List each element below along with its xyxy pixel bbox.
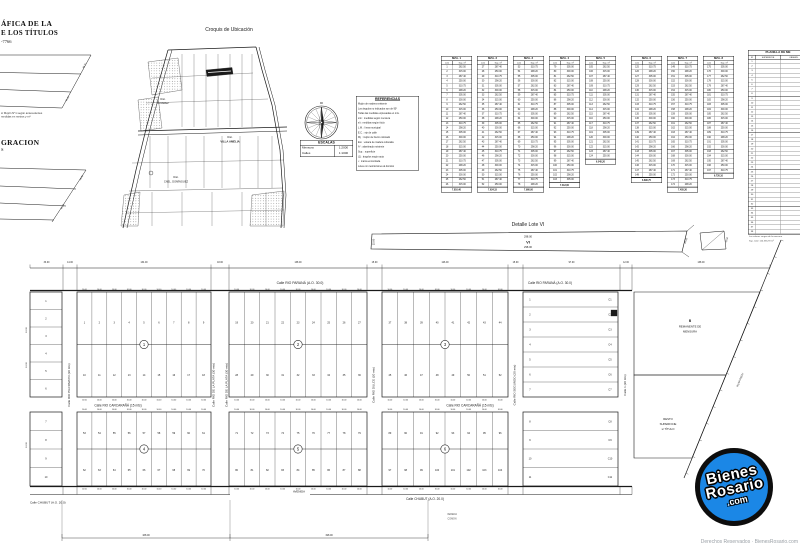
svg-text:168.00: 168.00 <box>142 534 150 537</box>
svg-text:7: 7 <box>45 420 47 423</box>
svg-text:SUPERFICIE: SUPERFICIE <box>660 422 677 426</box>
svg-text:21: 21 <box>266 322 269 325</box>
svg-text:24: 24 <box>312 322 315 325</box>
svg-text:10.00: 10.00 <box>388 289 393 291</box>
svg-text:66: 66 <box>143 469 146 472</box>
svg-text:10.00: 10.00 <box>498 289 503 291</box>
svg-text:23: 23 <box>297 322 300 325</box>
svg-text:10.00: 10.00 <box>82 409 87 411</box>
svg-text:10.00: 10.00 <box>97 409 102 411</box>
svg-text:Dist.: Dist. <box>227 135 232 139</box>
svg-text:10.00: 10.00 <box>280 399 285 401</box>
planilla-table: PLANILLA DE MEN°SUPERFICIEOBSERV.1234567… <box>748 50 800 250</box>
svg-text:10.00: 10.00 <box>201 488 206 490</box>
svg-text:10.00: 10.00 <box>326 488 331 490</box>
svg-text:10.00: 10.00 <box>311 409 316 411</box>
svg-text:33: 33 <box>312 374 315 377</box>
svg-text:10.00: 10.00 <box>265 289 270 291</box>
svg-text:80: 80 <box>235 469 238 472</box>
title-note: s/ Mojón N°1 según antecedentes medidas … <box>1 112 61 126</box>
svg-text:C4: C4 <box>608 344 612 347</box>
svg-text:75: 75 <box>297 432 300 435</box>
planilla-foot-1: Los valores surgen de la mensura <box>748 235 778 239</box>
title-block: ÁFICA DE LA E LOS TÍTULOS -7766 <box>1 20 58 44</box>
svg-text:10.00: 10.00 <box>403 488 408 490</box>
svg-text:10.00: 10.00 <box>326 409 331 411</box>
svg-text:N: N <box>320 101 322 105</box>
svg-text:47: 47 <box>420 374 423 377</box>
svg-text:10.00: 10.00 <box>97 399 102 401</box>
svg-text:18.00: 18.00 <box>217 262 223 264</box>
svg-text:10.00: 10.00 <box>311 289 316 291</box>
svg-text:99: 99 <box>420 469 423 472</box>
svg-text:C6: C6 <box>608 374 612 377</box>
svg-text:9: 9 <box>529 439 531 442</box>
svg-text:10.00: 10.00 <box>97 289 102 291</box>
svg-text:15.00: 15.00 <box>372 238 376 245</box>
svg-text:86: 86 <box>327 469 330 472</box>
svg-text:RESTO: RESTO <box>663 417 673 421</box>
svg-text:7: 7 <box>173 322 175 325</box>
svg-text:22: 22 <box>281 322 284 325</box>
svg-text:10.00: 10.00 <box>82 488 87 490</box>
svg-text:10.00: 10.00 <box>451 409 456 411</box>
svg-text:2: 2 <box>529 314 531 317</box>
svg-text:10.00: 10.00 <box>357 409 362 411</box>
svg-text:10.00: 10.00 <box>311 488 316 490</box>
svg-text:10.00: 10.00 <box>82 289 87 291</box>
svg-text:5: 5 <box>529 359 531 362</box>
legend-title: REFERENCIAS <box>358 98 417 102</box>
svg-text:C9: C9 <box>608 439 612 442</box>
svg-text:10: 10 <box>529 457 532 460</box>
svg-text:10.00: 10.00 <box>265 399 270 401</box>
svg-text:53: 53 <box>83 432 86 435</box>
svg-text:1: 1 <box>84 322 86 325</box>
svg-text:10: 10 <box>45 476 48 479</box>
svg-text:7: 7 <box>529 389 531 392</box>
svg-text:Calle CHUBUT (A.O. 20.0): Calle CHUBUT (A.O. 20.0) <box>406 497 444 501</box>
svg-text:45.72: 45.72 <box>83 62 88 68</box>
svg-text:10.00: 10.00 <box>250 289 255 291</box>
svg-text:10.00: 10.00 <box>142 409 147 411</box>
svg-text:C11: C11 <box>608 476 613 479</box>
svg-text:34: 34 <box>327 374 330 377</box>
svg-text:3: 3 <box>114 322 116 325</box>
svg-text:10.00: 10.00 <box>342 399 347 401</box>
scale-row: Calles1:1000 <box>301 151 353 157</box>
svg-text:10.00: 10.00 <box>482 409 487 411</box>
svg-text:10.00: 10.00 <box>171 289 176 291</box>
svg-text:8: 8 <box>45 439 47 442</box>
svg-text:6: 6 <box>45 387 47 390</box>
svg-text:10.00: 10.00 <box>435 488 440 490</box>
svg-text:10.00: 10.00 <box>26 361 28 367</box>
svg-text:49: 49 <box>451 374 454 377</box>
svg-text:69: 69 <box>187 469 190 472</box>
svg-text:10.00: 10.00 <box>342 289 347 291</box>
svg-text:Calle RIO CARCARAÑÁ (15 mts): Calle RIO CARCARAÑÁ (15 mts) <box>446 403 493 408</box>
svg-text:94: 94 <box>467 432 470 435</box>
svg-text:15.00: 15.00 <box>372 262 378 264</box>
right-parcels: BREMANENTE DEMENSURARESTOSUPERFICIEs/ TÍ… <box>634 240 783 478</box>
svg-text:10.00: 10.00 <box>451 488 456 490</box>
svg-text:126.00: 126.00 <box>441 262 449 264</box>
svg-text:10.00: 10.00 <box>403 289 408 291</box>
title2-line: GRACION <box>1 138 39 147</box>
svg-text:10.00: 10.00 <box>171 409 176 411</box>
svg-text:13: 13 <box>128 374 131 377</box>
svg-text:56: 56 <box>128 432 131 435</box>
svg-text:10.00: 10.00 <box>357 399 362 401</box>
svg-text:10.00: 10.00 <box>419 488 424 490</box>
location-sketch: Croquis de UbicaciónDist.ÁLVAREZDist.VIL… <box>121 27 287 228</box>
svg-text:10.00: 10.00 <box>186 488 191 490</box>
svg-text:VILLA AMELIA: VILLA AMELIA <box>220 140 239 144</box>
svg-text:67: 67 <box>157 469 160 472</box>
svg-text:82: 82 <box>266 469 269 472</box>
svg-text:Calle 1 (20 mts): Calle 1 (20 mts) <box>623 374 627 395</box>
svg-text:45: 45 <box>388 374 391 377</box>
svg-text:30: 30 <box>266 374 269 377</box>
svg-text:84: 84 <box>297 469 300 472</box>
watermark-text: Derechos Reservados · BienesRosario.com <box>701 539 798 545</box>
svg-text:98: 98 <box>404 469 407 472</box>
svg-text:10.00: 10.00 <box>97 488 102 490</box>
svg-text:83: 83 <box>281 469 284 472</box>
svg-text:70: 70 <box>202 469 205 472</box>
bottom-ruler: 168.00198.00VEREDACOMÚN <box>62 500 457 541</box>
svg-text:10.00: 10.00 <box>201 409 206 411</box>
svg-text:9: 9 <box>45 457 47 460</box>
lot-table: MZA. 1LoteSup. m²1262.502315.003287.4042… <box>441 56 472 193</box>
svg-text:10.00: 10.00 <box>435 289 440 291</box>
svg-text:10.00: 10.00 <box>127 399 132 401</box>
plan-blocks: 1234567891011010.0010.0021110.0010.00312… <box>30 289 618 490</box>
svg-text:102: 102 <box>467 469 472 472</box>
svg-text:10.00: 10.00 <box>112 488 117 490</box>
svg-text:10.00: 10.00 <box>311 399 316 401</box>
svg-text:Calle RIO DULCE (20 mts): Calle RIO DULCE (20 mts) <box>372 367 376 403</box>
svg-text:51: 51 <box>483 374 486 377</box>
svg-text:104: 104 <box>498 469 503 472</box>
svg-text:42: 42 <box>467 322 470 325</box>
svg-text:10.00: 10.00 <box>171 488 176 490</box>
svg-text:10.00: 10.00 <box>234 399 239 401</box>
svg-text:12.00: 12.00 <box>623 262 629 264</box>
svg-text:10.00: 10.00 <box>342 409 347 411</box>
svg-text:40: 40 <box>436 322 439 325</box>
svg-text:52: 52 <box>499 374 502 377</box>
compass-rose: N <box>305 101 338 139</box>
svg-text:44: 44 <box>499 322 502 325</box>
svg-text:10.00: 10.00 <box>466 399 471 401</box>
svg-text:10.00: 10.00 <box>435 409 440 411</box>
svg-text:28: 28 <box>235 374 238 377</box>
svg-text:78: 78 <box>343 432 346 435</box>
svg-text:Dist.: Dist. <box>173 175 178 179</box>
svg-text:10.00: 10.00 <box>280 289 285 291</box>
svg-text:298.00: 298.00 <box>524 235 532 239</box>
svg-text:10.00: 10.00 <box>296 488 301 490</box>
svg-text:31: 31 <box>281 374 284 377</box>
svg-text:4: 4 <box>45 352 47 355</box>
svg-text:Calle CHUBUT (A.O. 20.0): Calle CHUBUT (A.O. 20.0) <box>30 501 66 505</box>
svg-text:85: 85 <box>312 469 315 472</box>
svg-text:10.00: 10.00 <box>171 399 176 401</box>
svg-text:Detalle Lote VI: Detalle Lote VI <box>512 222 545 228</box>
svg-text:74: 74 <box>281 432 284 435</box>
svg-text:20: 20 <box>251 322 254 325</box>
svg-text:10.00: 10.00 <box>342 488 347 490</box>
svg-text:C5: C5 <box>608 359 612 362</box>
svg-text:97: 97 <box>388 469 391 472</box>
svg-text:38.40: 38.40 <box>80 174 85 180</box>
svg-text:RUTA PROV.: RUTA PROV. <box>735 372 745 388</box>
svg-text:Croquis de Ubicación: Croquis de Ubicación <box>205 27 253 33</box>
scales-box: ESCALAS Mensura1:2000Calles1:1000 <box>300 140 352 168</box>
svg-text:81: 81 <box>251 469 254 472</box>
svg-text:10.00: 10.00 <box>157 289 162 291</box>
svg-text:ÁLVAREZ: ÁLVAREZ <box>157 101 169 105</box>
svg-text:10.00: 10.00 <box>186 399 191 401</box>
svg-text:10.00: 10.00 <box>296 409 301 411</box>
svg-text:63: 63 <box>98 469 101 472</box>
title-line-1: ÁFICA DE LA <box>1 20 58 29</box>
svg-text:9: 9 <box>203 322 205 325</box>
svg-text:97.00: 97.00 <box>569 262 575 264</box>
svg-text:10.00: 10.00 <box>357 488 362 490</box>
svg-text:14.00: 14.00 <box>67 262 73 264</box>
svg-text:10.00: 10.00 <box>250 488 255 490</box>
svg-text:11: 11 <box>98 374 101 377</box>
lot-tables: MZA. 1LoteSup. m²1262.502315.003287.4042… <box>441 56 739 193</box>
svg-text:12.50: 12.50 <box>726 236 730 243</box>
svg-text:37: 37 <box>388 322 391 325</box>
svg-text:10.00: 10.00 <box>127 289 132 291</box>
svg-text:2: 2 <box>45 317 47 320</box>
svg-text:25: 25 <box>327 322 330 325</box>
svg-text:10.00: 10.00 <box>265 488 270 490</box>
planilla-foot-2: Sup. total: 124.356,78 m² <box>748 239 778 243</box>
svg-text:57: 57 <box>143 432 146 435</box>
scales-rows: Mensura1:2000Calles1:1000 <box>301 146 353 157</box>
svg-text:10.00: 10.00 <box>127 488 132 490</box>
svg-text:Calle RIO PARANÁ (A.O. 30.0): Calle RIO PARANÁ (A.O. 30.0) <box>277 281 324 285</box>
svg-text:10.00: 10.00 <box>419 409 424 411</box>
svg-text:10.00: 10.00 <box>157 488 162 490</box>
logo-text: Bienes Rosario .com <box>701 462 766 511</box>
svg-text:10.00: 10.00 <box>26 441 28 447</box>
svg-text:3: 3 <box>45 335 47 338</box>
svg-text:48: 48 <box>436 374 439 377</box>
legend-box: REFERENCIAS Mojón de madera existenteLos… <box>356 96 419 180</box>
lot-table: MZA. 4LoteSup. m²79305.0080300.0081262.5… <box>549 56 580 188</box>
svg-text:s/ TÍTULO: s/ TÍTULO <box>662 427 676 431</box>
svg-text:10.00: 10.00 <box>419 399 424 401</box>
svg-text:61: 61 <box>202 432 205 435</box>
svg-text:10.00: 10.00 <box>157 409 162 411</box>
svg-text:93: 93 <box>451 432 454 435</box>
svg-text:10.00: 10.00 <box>201 399 206 401</box>
svg-text:10.00: 10.00 <box>419 289 424 291</box>
svg-text:19: 19 <box>235 322 238 325</box>
svg-text:16: 16 <box>172 374 175 377</box>
svg-text:10.00: 10.00 <box>403 399 408 401</box>
svg-text:29: 29 <box>251 374 254 377</box>
svg-text:60: 60 <box>187 432 190 435</box>
lot-table: MZA. 7LoteSup. m²149310.75150298.2015130… <box>667 56 698 193</box>
svg-text:VI: VI <box>526 240 530 245</box>
svg-text:101: 101 <box>451 469 456 472</box>
svg-text:10.00: 10.00 <box>186 409 191 411</box>
title2-sub: S <box>1 147 39 152</box>
svg-text:55: 55 <box>113 432 116 435</box>
svg-text:Calle RIO PARANÁ (A.O. 30.0): Calle RIO PARANÁ (A.O. 30.0) <box>528 281 572 285</box>
svg-text:Calle RIO DE LA PLATA (30 mts): Calle RIO DE LA PLATA (30 mts) <box>225 363 229 407</box>
svg-text:12: 12 <box>113 374 116 377</box>
svg-text:41: 41 <box>451 322 454 325</box>
svg-text:88: 88 <box>358 469 361 472</box>
svg-text:10.00: 10.00 <box>482 289 487 291</box>
svg-text:68: 68 <box>172 469 175 472</box>
svg-text:138.00: 138.00 <box>294 262 302 264</box>
svg-text:54: 54 <box>98 432 101 435</box>
bienesrosario-logo: Bienes Rosario .com <box>695 448 773 526</box>
svg-text:10.00: 10.00 <box>388 409 393 411</box>
svg-text:62: 62 <box>83 469 86 472</box>
svg-text:10.00: 10.00 <box>403 409 408 411</box>
svg-text:90: 90 <box>404 432 407 435</box>
svg-text:8: 8 <box>529 420 531 423</box>
svg-text:89: 89 <box>388 432 391 435</box>
svg-text:10.00: 10.00 <box>498 409 503 411</box>
svg-text:10.00: 10.00 <box>250 399 255 401</box>
svg-text:100: 100 <box>435 469 440 472</box>
svg-text:15: 15 <box>157 374 160 377</box>
svg-text:72: 72 <box>251 432 254 435</box>
lot-table: MZA. 5LoteSup. m²105262.50106315.0010728… <box>585 56 616 165</box>
svg-text:10.00: 10.00 <box>466 289 471 291</box>
svg-text:1: 1 <box>45 300 47 303</box>
svg-text:10.00: 10.00 <box>296 399 301 401</box>
svg-text:10.00: 10.00 <box>451 399 456 401</box>
svg-text:5: 5 <box>143 322 145 325</box>
svg-text:VEREDA: VEREDA <box>447 513 457 516</box>
svg-text:10.00: 10.00 <box>498 488 503 490</box>
lot-table: MZA. 8LoteSup. m²175305.00176300.0017726… <box>703 56 734 179</box>
legend-lines: Mojón de madera existenteLos ángulos no … <box>358 102 417 169</box>
svg-text:10.00: 10.00 <box>82 399 87 401</box>
svg-text:51.30: 51.30 <box>66 95 71 101</box>
svg-text:B: B <box>689 319 692 323</box>
svg-text:91: 91 <box>420 432 423 435</box>
lot-table: MZA. 3LoteSup. m²53310.7554298.2055305.0… <box>513 56 544 193</box>
svg-text:2: 2 <box>99 322 101 325</box>
svg-text:COMÚN: COMÚN <box>447 518 456 521</box>
svg-text:10.00: 10.00 <box>357 289 362 291</box>
svg-text:C7: C7 <box>608 389 612 392</box>
svg-text:11: 11 <box>529 476 532 479</box>
svg-text:10.00: 10.00 <box>142 399 147 401</box>
svg-text:76: 76 <box>312 432 315 435</box>
svg-text:10.00: 10.00 <box>388 399 393 401</box>
svg-text:6: 6 <box>158 322 160 325</box>
svg-text:103: 103 <box>482 469 487 472</box>
svg-text:95: 95 <box>483 432 486 435</box>
svg-text:MENSURA: MENSURA <box>683 330 697 334</box>
svg-text:10.00: 10.00 <box>26 326 28 332</box>
title-note-2: medidas en metros y m² <box>1 115 56 118</box>
svg-text:10.00: 10.00 <box>112 409 117 411</box>
svg-text:10.00: 10.00 <box>326 289 331 291</box>
svg-text:10.00: 10.00 <box>234 289 239 291</box>
subdivision-plan: 33.0014.00134.0018.00138.0015.00126.0015… <box>26 262 770 505</box>
svg-text:10.00: 10.00 <box>127 409 132 411</box>
svg-text:5: 5 <box>45 370 47 373</box>
svg-text:15.02: 15.02 <box>684 237 689 244</box>
survey-plan-sheet: 45.7251.3038.4042.15Croquis de Ubicación… <box>0 0 800 550</box>
svg-text:Calle RIO SEGUNDO (20 mts): Calle RIO SEGUNDO (20 mts) <box>513 365 517 406</box>
svg-text:43: 43 <box>483 322 486 325</box>
svg-text:77: 77 <box>327 432 330 435</box>
svg-text:10.00: 10.00 <box>498 399 503 401</box>
svg-text:10.00: 10.00 <box>326 399 331 401</box>
svg-text:10.00: 10.00 <box>280 488 285 490</box>
svg-text:Calle RIO CARCARAÑÁ (15 mts): Calle RIO CARCARAÑÁ (15 mts) <box>94 403 141 408</box>
svg-text:10.00: 10.00 <box>482 488 487 490</box>
svg-text:3: 3 <box>529 329 531 332</box>
svg-text:38: 38 <box>404 322 407 325</box>
svg-text:C8: C8 <box>608 420 612 423</box>
svg-text:REMANENTE DE: REMANENTE DE <box>679 325 701 329</box>
svg-text:27: 27 <box>358 322 361 325</box>
svg-text:26: 26 <box>343 322 346 325</box>
svg-text:39: 39 <box>420 322 423 325</box>
svg-text:79: 79 <box>358 432 361 435</box>
title-ref: -7766 <box>1 39 58 44</box>
svg-text:36: 36 <box>358 374 361 377</box>
svg-text:10.00: 10.00 <box>451 289 456 291</box>
svg-text:4: 4 <box>128 322 130 325</box>
svg-text:10.00: 10.00 <box>296 289 301 291</box>
svg-text:4: 4 <box>529 344 531 347</box>
lot-table: MZA. 2LoteSup. m²27287.4028250.0029310.7… <box>477 56 508 193</box>
svg-text:10.00: 10.00 <box>157 399 162 401</box>
svg-text:10: 10 <box>83 374 86 377</box>
svg-text:33.00: 33.00 <box>44 262 50 264</box>
title-block-2: GRACION S <box>1 138 39 152</box>
svg-text:8: 8 <box>188 322 190 325</box>
svg-text:C10: C10 <box>608 457 613 460</box>
svg-text:C3: C3 <box>608 329 612 332</box>
lot-detail: Detalle Lote VIVI298.00298.0015.0015.021… <box>371 222 729 257</box>
svg-text:35: 35 <box>343 374 346 377</box>
svg-text:17: 17 <box>187 374 190 377</box>
svg-text:73: 73 <box>266 432 269 435</box>
svg-text:1: 1 <box>529 299 531 302</box>
svg-text:64: 64 <box>113 469 116 472</box>
svg-text:10.00: 10.00 <box>466 488 471 490</box>
svg-text:134.00: 134.00 <box>140 262 148 264</box>
title-line-2: E LOS TÍTULOS <box>1 29 58 37</box>
svg-text:CNEL. DOMÍNGUEZ: CNEL. DOMÍNGUEZ <box>164 180 189 184</box>
svg-text:198.00: 198.00 <box>325 534 333 537</box>
svg-text:10.00: 10.00 <box>142 488 147 490</box>
svg-text:59: 59 <box>172 432 175 435</box>
svg-text:14: 14 <box>143 374 146 377</box>
svg-text:58: 58 <box>157 432 160 435</box>
